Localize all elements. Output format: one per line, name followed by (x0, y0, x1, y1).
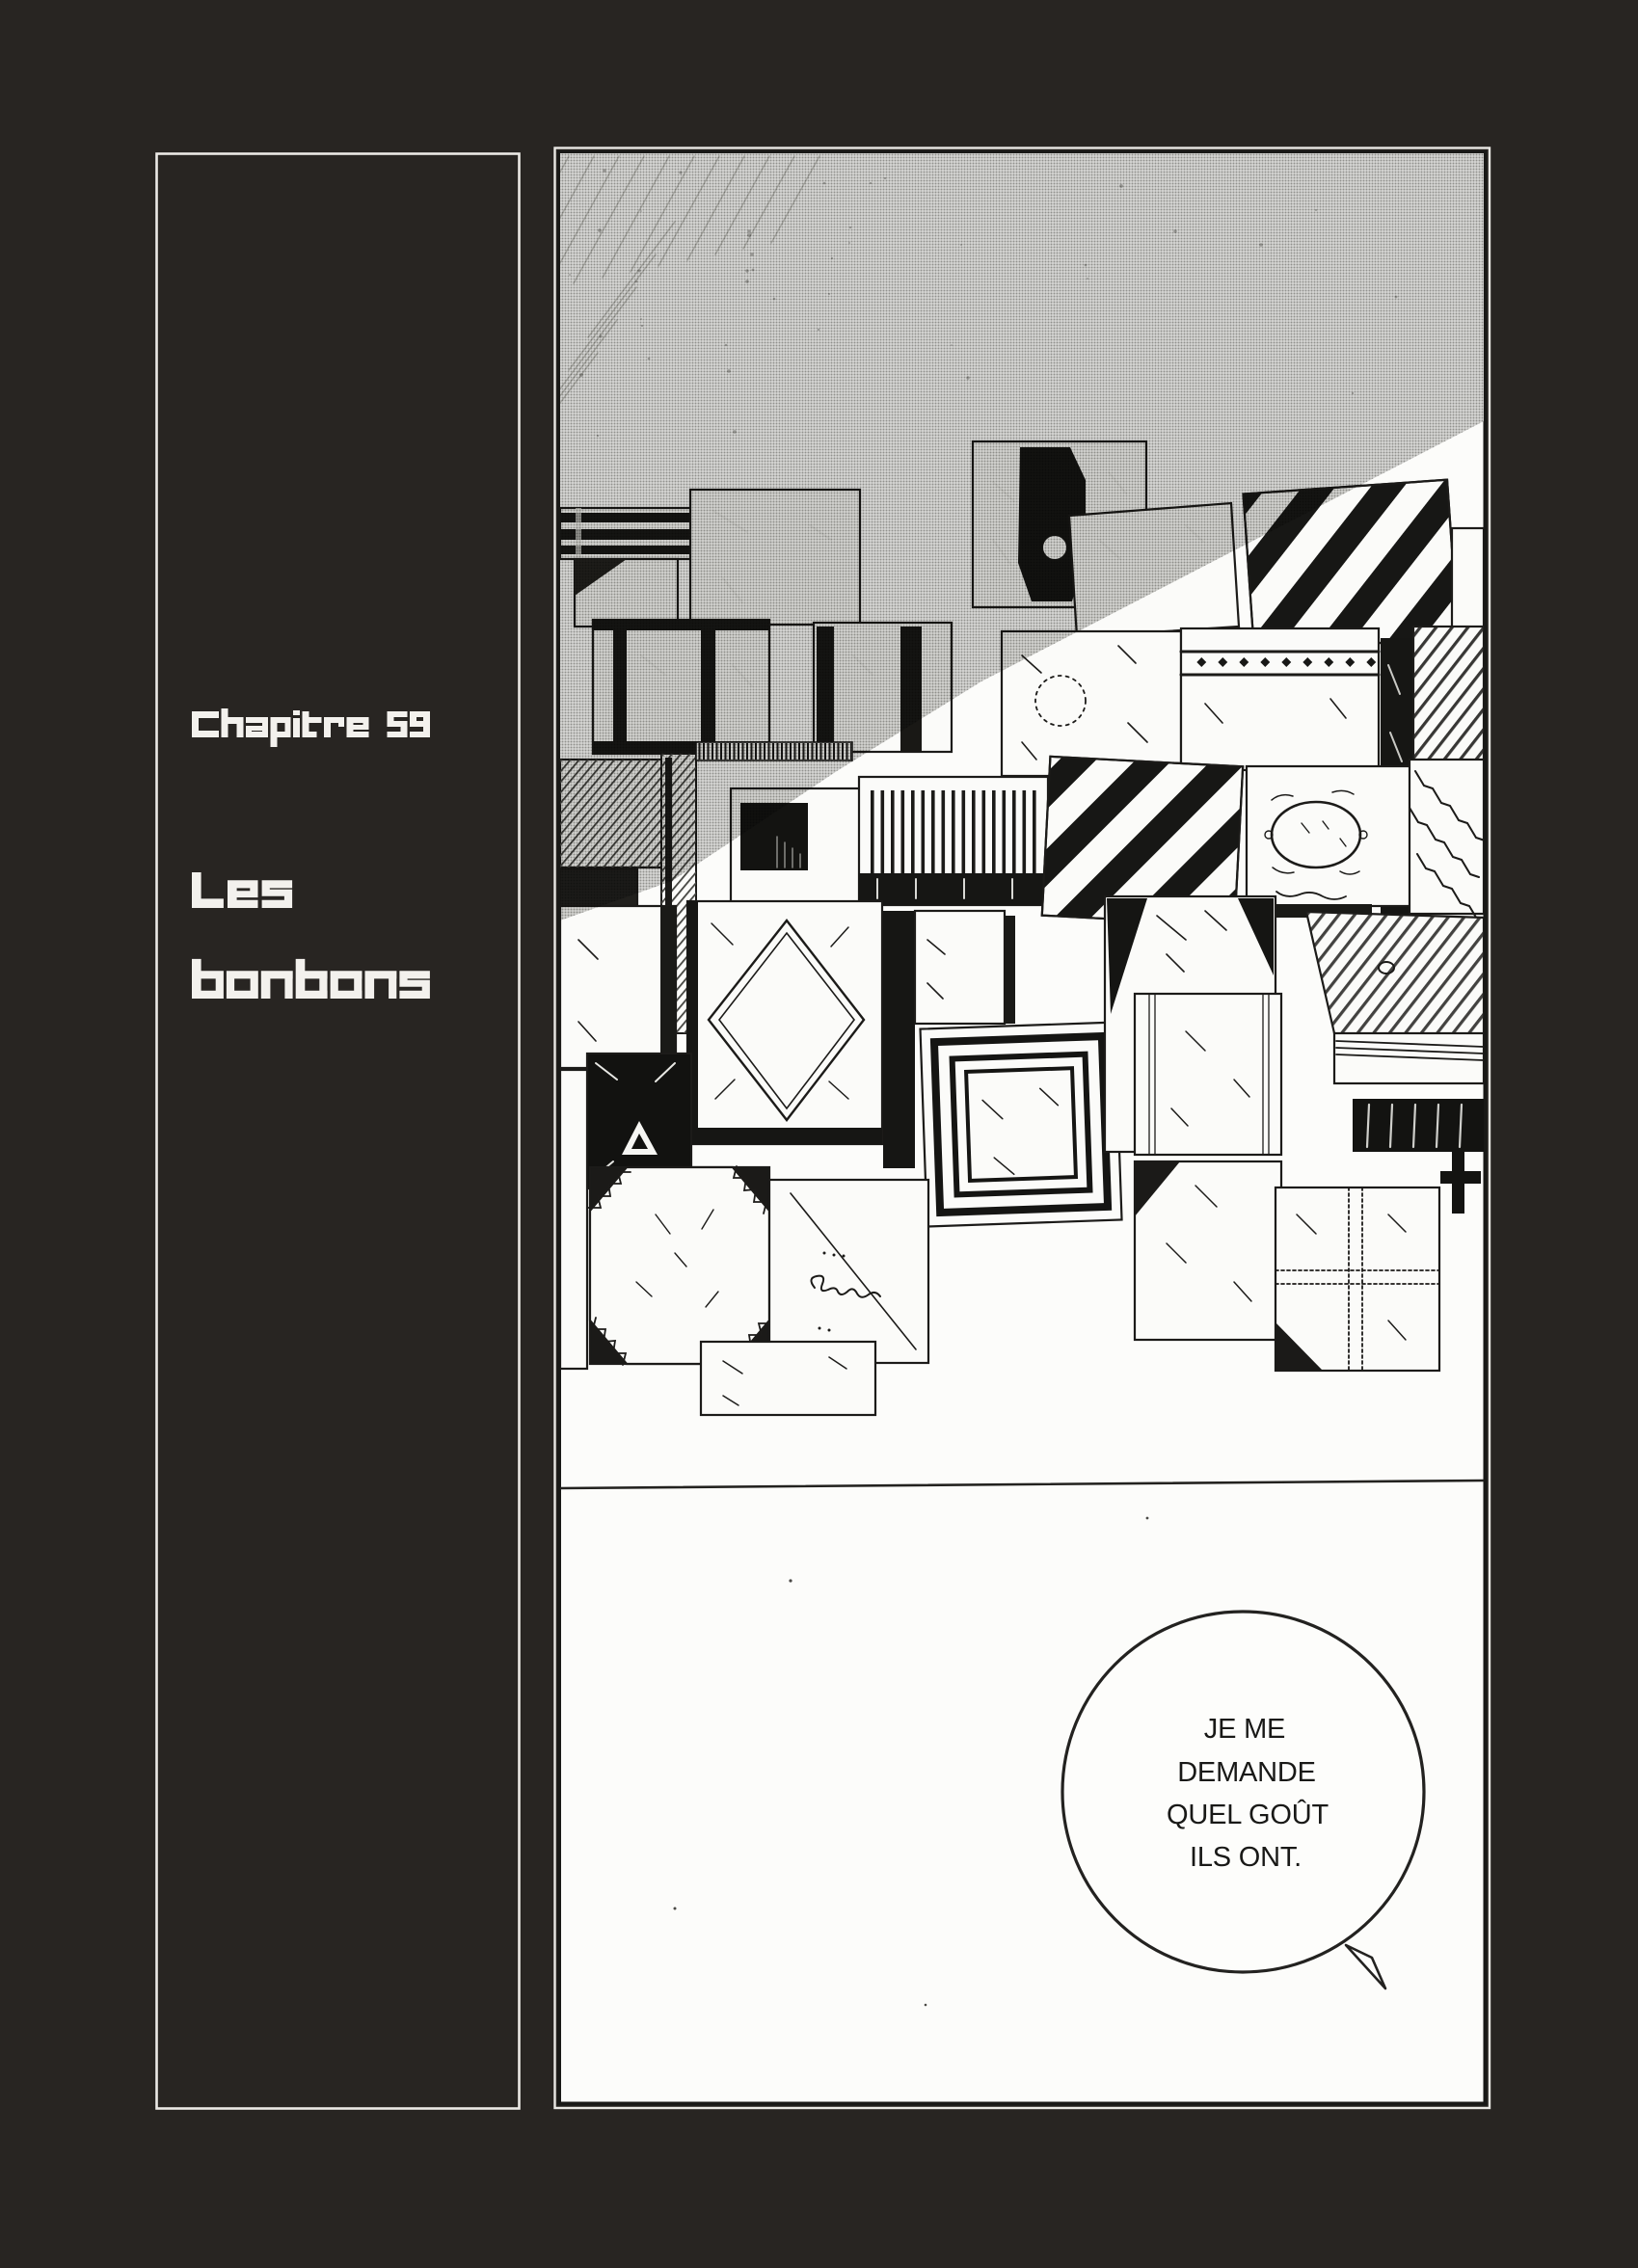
svg-text:DEMANDE: DEMANDE (1177, 1757, 1316, 1788)
svg-text:ILS ONT.: ILS ONT. (1190, 1842, 1302, 1873)
svg-text:JE ME: JE ME (1204, 1714, 1285, 1745)
svg-text:QUEL GOÛT: QUEL GOÛT (1167, 1798, 1329, 1830)
